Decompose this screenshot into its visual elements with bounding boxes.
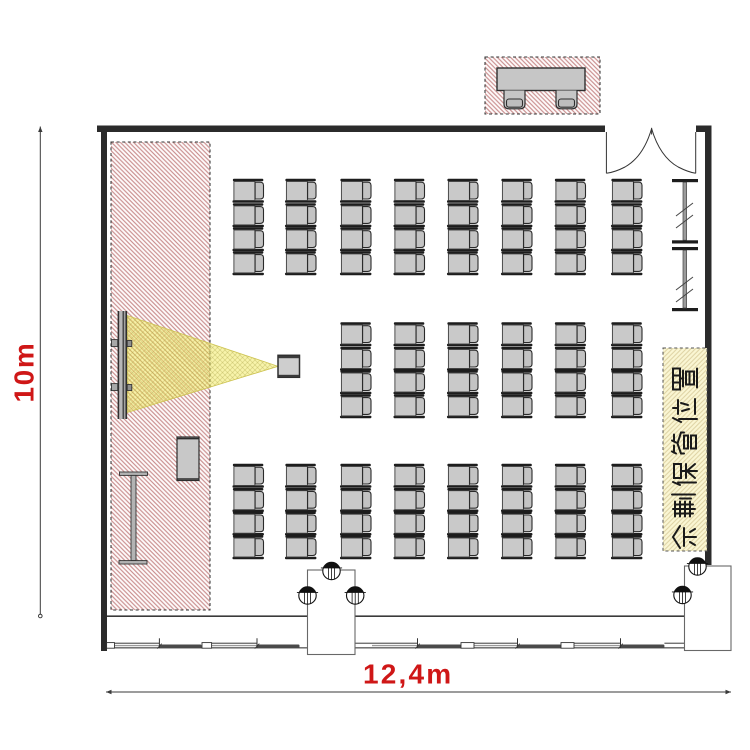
svg-text:12,4m: 12,4m [363,659,453,690]
svg-text:10m: 10m [9,342,40,403]
